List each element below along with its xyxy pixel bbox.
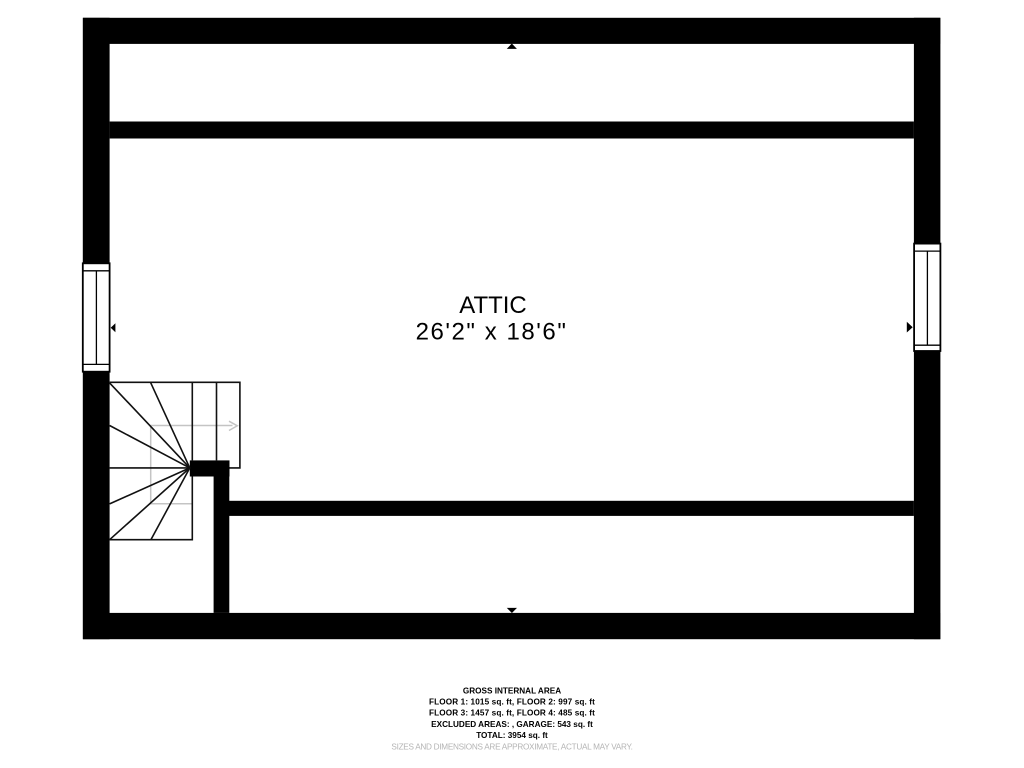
svg-text:26'2" x 18'6": 26'2" x 18'6" [416, 319, 568, 346]
svg-text:ATTIC: ATTIC [459, 292, 527, 319]
svg-text:FLOOR 1: 1015 sq. ft, FLOOR 2:: FLOOR 1: 1015 sq. ft, FLOOR 2: 997 sq. f… [429, 698, 595, 707]
svg-text:GROSS INTERNAL AREA: GROSS INTERNAL AREA [463, 686, 561, 695]
svg-text:FLOOR 3: 1457 sq. ft, FLOOR 4:: FLOOR 3: 1457 sq. ft, FLOOR 4: 485 sq. f… [429, 709, 595, 718]
svg-text:EXCLUDED AREAS: , GARAGE: 543: EXCLUDED AREAS: , GARAGE: 543 sq. ft [431, 720, 593, 729]
svg-text:SIZES AND DIMENSIONS ARE APPRO: SIZES AND DIMENSIONS ARE APPROXIMATE, AC… [391, 742, 632, 751]
svg-text:TOTAL: 3954 sq. ft: TOTAL: 3954 sq. ft [476, 731, 548, 740]
